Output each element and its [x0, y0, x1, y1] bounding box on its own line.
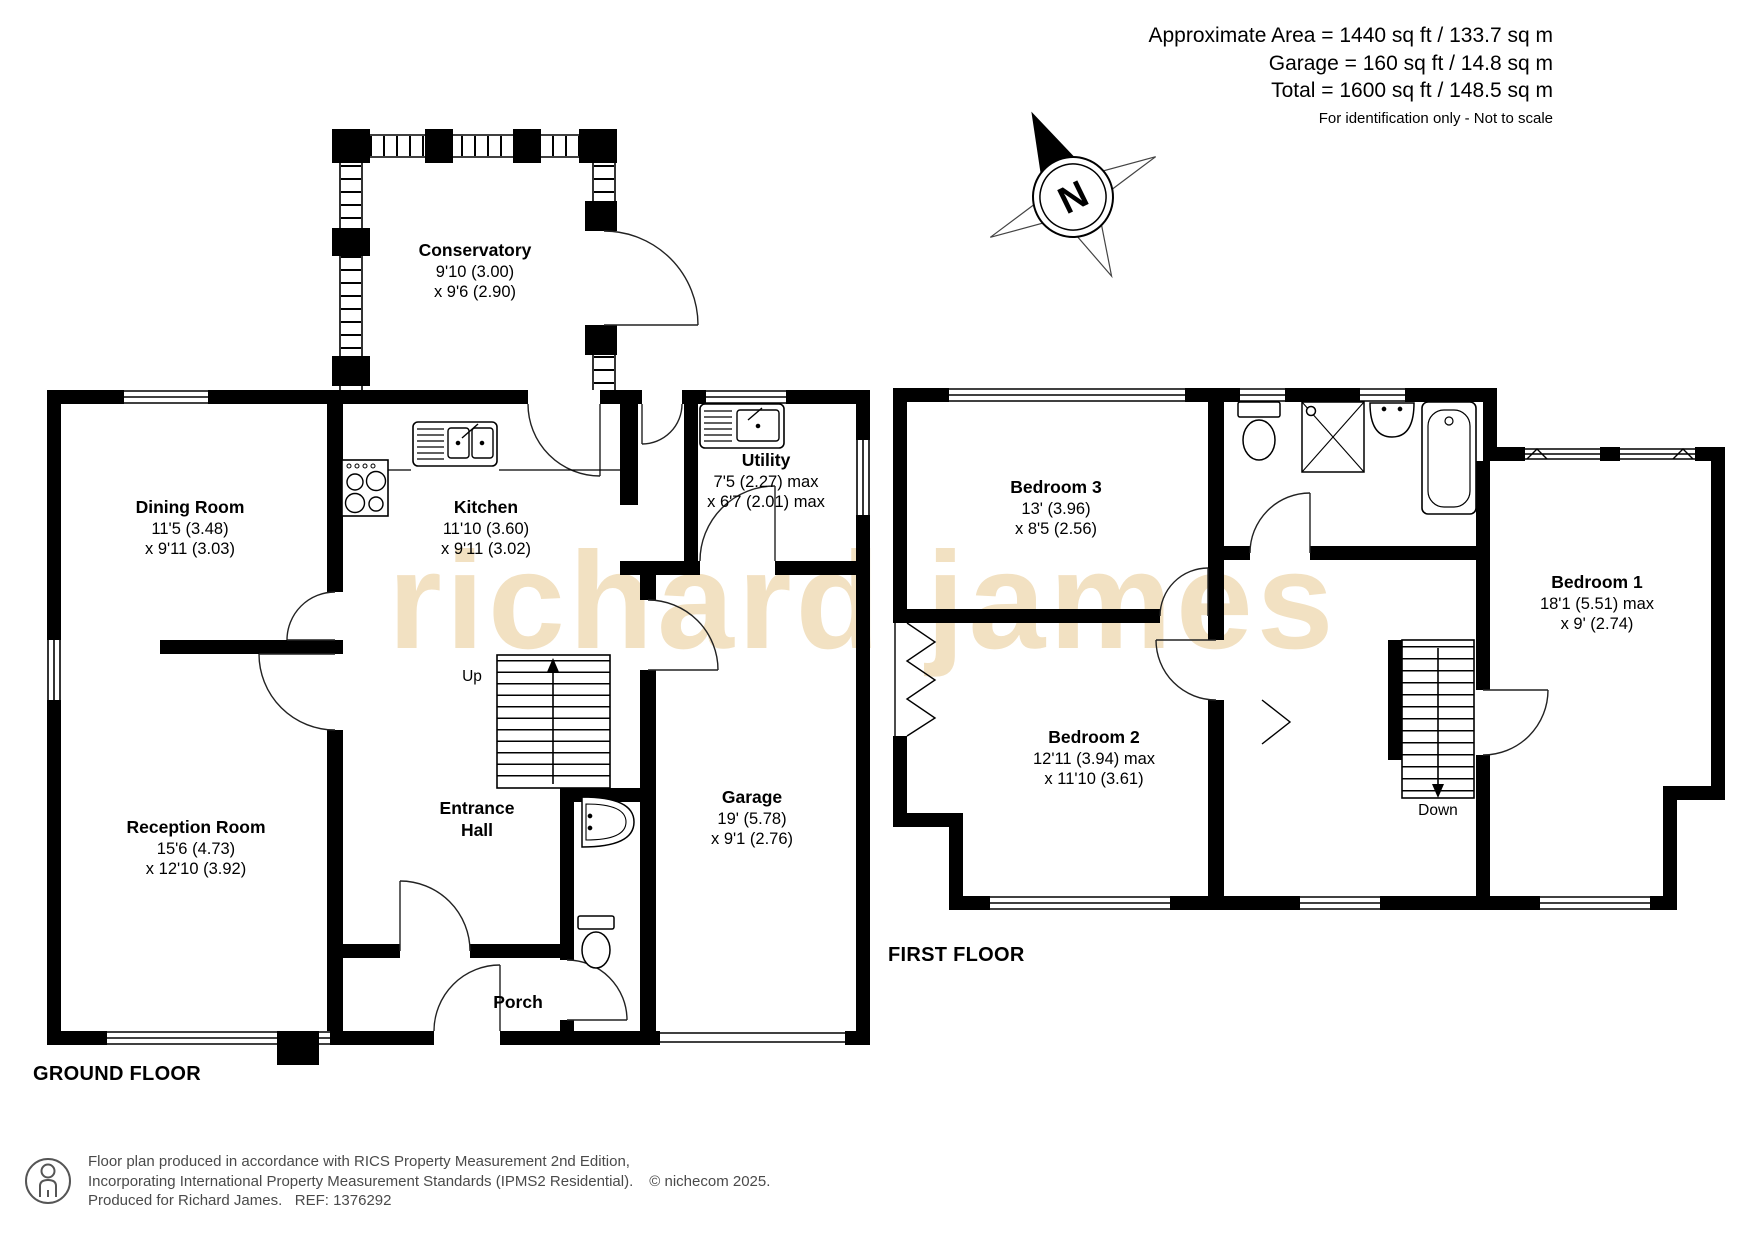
room-label-bedroom-1: Bedroom 1 18'1 (5.51) max x 9' (2.74): [1540, 572, 1654, 635]
floorplan-drawing: richard james: [0, 0, 1755, 1241]
shower-icon: [1302, 402, 1364, 472]
room-dim: x 9'1 (2.76): [711, 829, 793, 849]
room-label-entrance-hall: Entrance Hall: [427, 798, 527, 841]
room-name: Kitchen: [441, 497, 531, 519]
room-label-bedroom-3: Bedroom 3 13' (3.96) x 8'5 (2.56): [1010, 477, 1101, 540]
room-dim: x 11'10 (3.61): [1033, 769, 1155, 789]
room-dim: x 9' (2.74): [1540, 614, 1654, 634]
room-label-porch: Porch: [493, 992, 543, 1014]
footer-line-2: Incorporating International Property Mea…: [88, 1172, 770, 1192]
utility-sink-icon: [700, 404, 784, 448]
room-name: Utility: [707, 450, 825, 472]
room-label-garage: Garage 19' (5.78) x 9'1 (2.76): [711, 787, 793, 850]
basin-icon: [1370, 403, 1414, 437]
room-dim: x 9'6 (2.90): [419, 282, 532, 302]
room-dim: x 12'10 (3.92): [126, 859, 265, 879]
room-label-utility: Utility 7'5 (2.27) max x 6'7 (2.01) max: [707, 450, 825, 513]
footer-line-1: Floor plan produced in accordance with R…: [88, 1152, 770, 1172]
room-dim: x 9'11 (3.02): [441, 539, 531, 559]
wc-basin-icon: [582, 797, 634, 847]
room-dim: 9'10 (3.00): [419, 262, 532, 282]
room-dim: x 8'5 (2.56): [1010, 519, 1101, 539]
wc-toilet-icon: [578, 916, 614, 968]
room-name: Dining Room: [136, 497, 245, 519]
room-name: Bedroom 2: [1033, 727, 1155, 749]
room-label-bedroom-2: Bedroom 2 12'11 (3.94) max x 11'10 (3.61…: [1033, 727, 1155, 790]
room-dim: 7'5 (2.27) max: [707, 472, 825, 492]
room-dim: 19' (5.78): [711, 809, 793, 829]
room-name: Conservatory: [419, 240, 532, 262]
approximate-area-line: Approximate Area = 1440 sq ft / 133.7 sq…: [1149, 22, 1554, 50]
room-name: Reception Room: [126, 817, 265, 839]
room-label-reception-room: Reception Room 15'6 (4.73) x 12'10 (3.92…: [126, 817, 265, 880]
room-dim: 11'5 (3.48): [136, 519, 245, 539]
footer-copyright: © nichecom 2025.: [633, 1173, 770, 1190]
toilet-icon: [1238, 402, 1280, 460]
person-icon: [24, 1152, 72, 1215]
footer-line-3: Produced for Richard James. REF: 1376292: [88, 1191, 770, 1211]
footer-text: Floor plan produced in accordance with R…: [88, 1152, 770, 1211]
stairs-down: [1402, 640, 1474, 798]
room-name: Bedroom 3: [1010, 477, 1101, 499]
footer-standards-text: Incorporating International Property Mea…: [88, 1173, 633, 1190]
area-summary: Approximate Area = 1440 sq ft / 133.7 sq…: [1149, 22, 1554, 127]
room-dim: 12'11 (3.94) max: [1033, 749, 1155, 769]
total-area-line: Total = 1600 sq ft / 148.5 sq m: [1149, 77, 1554, 105]
room-label-kitchen: Kitchen 11'10 (3.60) x 9'11 (3.02): [441, 497, 531, 560]
stove-icon: [342, 460, 388, 516]
room-name: Entrance Hall: [427, 798, 527, 841]
ground-floor-title: GROUND FLOOR: [33, 1063, 201, 1086]
first-floor-title: FIRST FLOOR: [888, 944, 1025, 967]
room-label-conservatory: Conservatory 9'10 (3.00) x 9'6 (2.90): [419, 240, 532, 303]
floorplan-canvas: richard james: [0, 0, 1755, 1241]
room-dim: 15'6 (4.73): [126, 839, 265, 859]
garage-area-line: Garage = 160 sq ft / 14.8 sq m: [1149, 50, 1554, 78]
disclaimer-text: For identification only - Not to scale: [1149, 110, 1554, 127]
room-name: Porch: [493, 992, 543, 1014]
room-dim: 18'1 (5.51) max: [1540, 594, 1654, 614]
room-name: Bedroom 1: [1540, 572, 1654, 594]
room-name: Garage: [711, 787, 793, 809]
room-dim: 11'10 (3.60): [441, 519, 531, 539]
room-dim: x 6'7 (2.01) max: [707, 492, 825, 512]
bathtub-icon: [1422, 402, 1476, 514]
room-label-dining-room: Dining Room 11'5 (3.48) x 9'11 (3.03): [136, 497, 245, 560]
room-dim: x 9'11 (3.03): [136, 539, 245, 559]
stairs-up-label: Up: [462, 668, 482, 686]
kitchen-sink-icon: [413, 422, 497, 466]
room-dim: 13' (3.96): [1010, 499, 1101, 519]
stairs-down-label: Down: [1418, 802, 1458, 820]
